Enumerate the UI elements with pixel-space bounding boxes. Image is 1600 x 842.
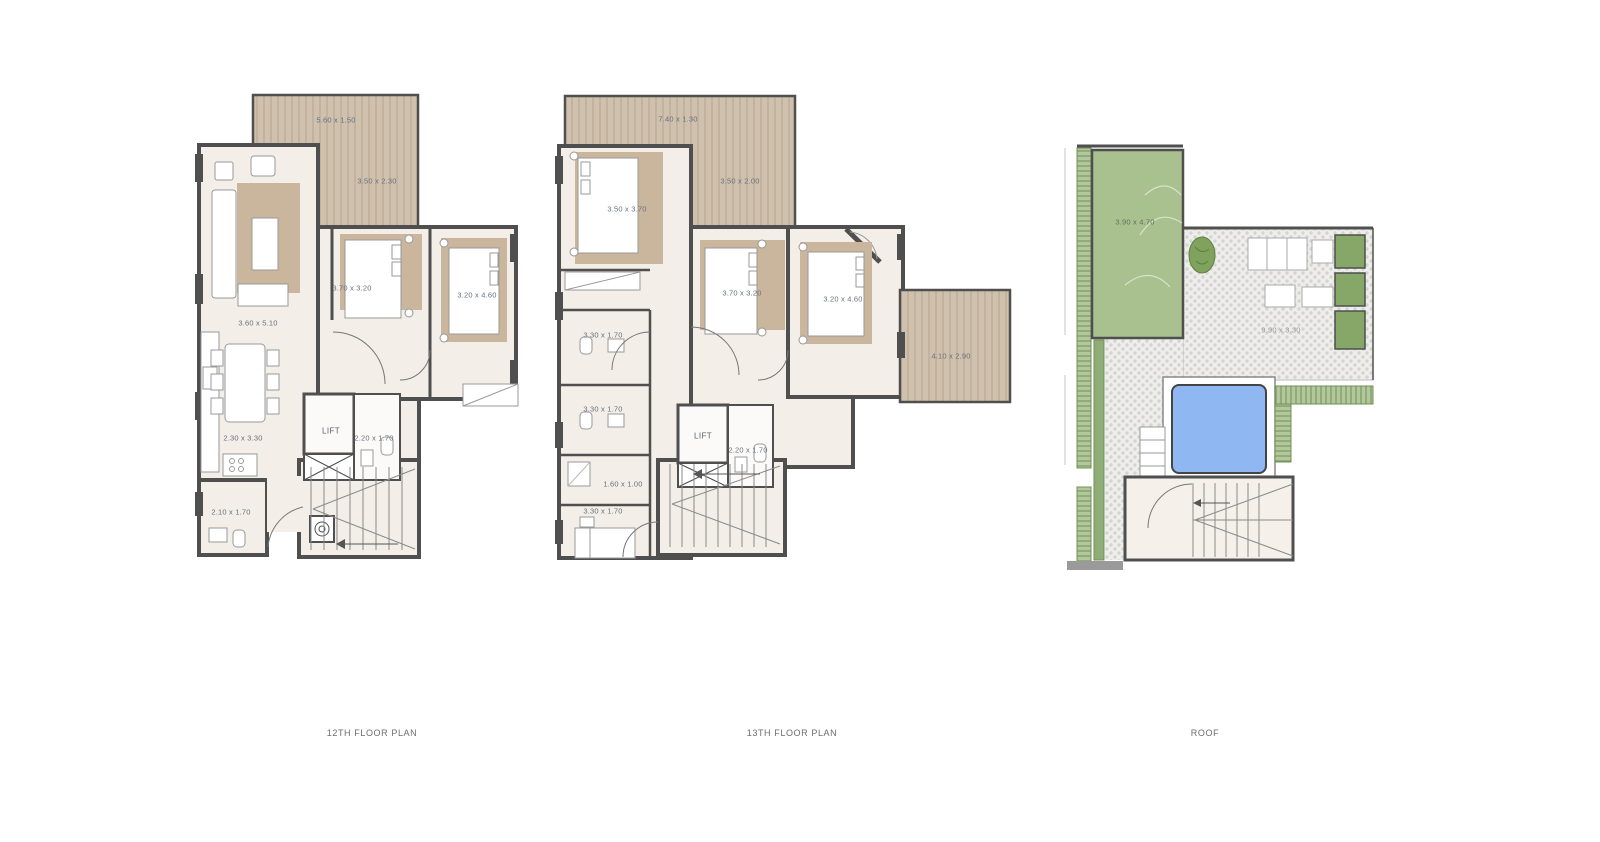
dim-label-bath1-13: 3.30 x 1.70 [583,331,622,340]
terrace-deck-right [900,290,1010,402]
roof-plan-drawing [1045,135,1385,580]
floor-plans-sheet: 5.60 x 1.50 3.50 x 2.30 3.60 x 5.10 3.70… [0,0,1600,842]
dim-label-garden-roof: 3.90 x 4.70 [1115,218,1154,227]
dim-label-terrace-top-12: 5.60 x 1.50 [316,116,355,125]
dim-label-bedroom1-12: 3.70 x 3.20 [332,284,371,293]
dim-label-bath3-13: 3.30 x 1.70 [583,507,622,516]
tree [1189,237,1215,273]
dim-label-dining-12: 2.30 x 3.30 [223,434,262,443]
dim-label-bath2-12: 2.10 x 1.70 [211,508,250,517]
window-sill [565,272,640,290]
lift-shaft [678,405,728,487]
dim-label-terrace-right-13: 4.10 x 2.90 [931,352,970,361]
bedroom1-furniture [340,234,422,318]
lift-label-13: LIFT [694,432,712,441]
dim-label-bedroom1-13: 3.50 x 3.70 [607,205,646,214]
pool [1163,377,1275,481]
dim-label-hall-13: 1.60 x 1.00 [603,480,642,489]
dim-label-bedroom2-12: 3.20 x 4.60 [457,291,496,300]
base-bar [1067,561,1123,570]
dim-label-bath-12: 2.20 x 1.70 [354,434,393,443]
floor-plan-13th-drawing [550,92,1020,567]
green-band [1275,386,1373,462]
pool-steps [1140,427,1165,477]
caption-roof: ROOF [1191,728,1219,738]
dim-label-bedroom3-13: 3.20 x 4.60 [823,295,862,304]
dim-label-bedroom2-13: 3.70 x 3.20 [722,289,761,298]
dim-label-terrace-side-12: 3.50 x 2.30 [357,177,396,186]
dim-label-terrace-roof: 9.90 x 3.30 [1261,326,1300,335]
stair-room [1125,477,1293,560]
bedroom3-furniture [799,242,872,344]
dim-label-terrace-top-13: 7.40 x 1.30 [658,115,697,124]
caption-12th-floor: 12TH FLOOR PLAN [327,728,418,738]
washer [310,516,334,542]
lift-label-12: LIFT [322,427,340,436]
caption-13th-floor: 13TH FLOOR PLAN [747,728,838,738]
dim-label-bath2-13: 3.30 x 1.70 [583,405,622,414]
window-sill [463,384,518,406]
dim-label-terrace-side-13: 3.50 x 2.00 [720,177,759,186]
dim-label-bath4-13: 2.20 x 1.70 [728,446,767,455]
dim-label-living-12: 3.60 x 5.10 [238,319,277,328]
planters [1335,235,1365,349]
